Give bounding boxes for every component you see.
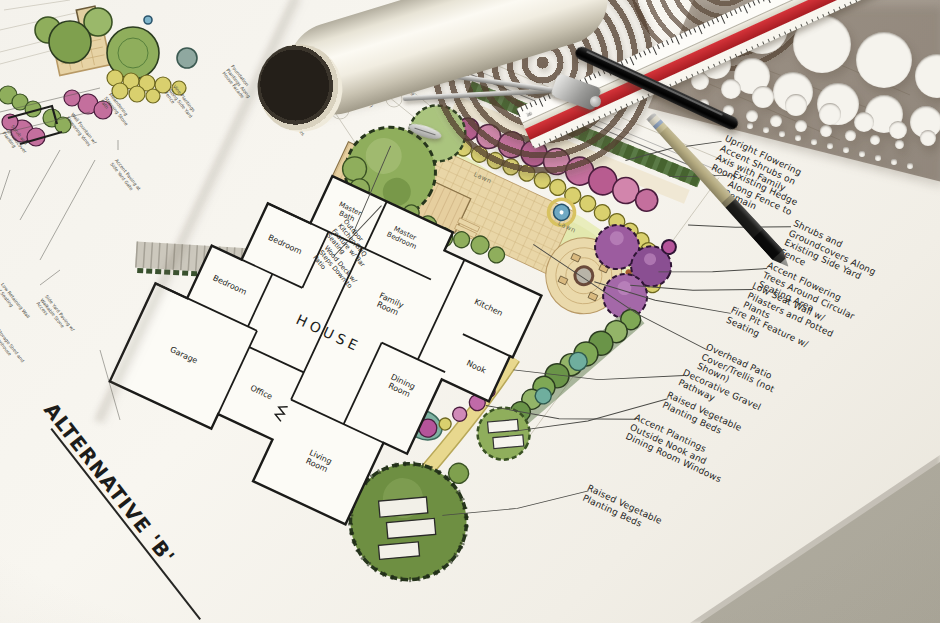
desk-photo-scene: Upright Flowering Accent Shrubs on Axis … xyxy=(0,0,940,623)
compass-knob xyxy=(590,96,601,107)
template-tick-marks xyxy=(739,152,924,201)
